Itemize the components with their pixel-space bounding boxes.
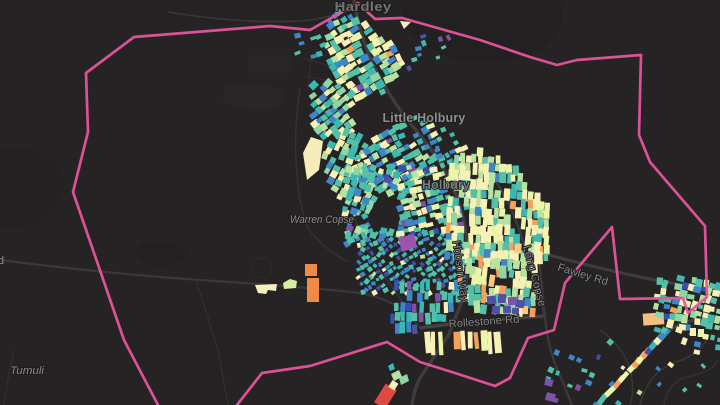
svg-text:Tumuli: Tumuli: [10, 365, 45, 377]
svg-text:Little Holbury: Little Holbury: [383, 111, 466, 125]
svg-text:Warren Copse: Warren Copse: [290, 214, 354, 226]
svg-text:Hardley: Hardley: [335, 0, 392, 14]
svg-text:Holbury: Holbury: [422, 178, 470, 192]
svg-text:d: d: [0, 255, 4, 267]
